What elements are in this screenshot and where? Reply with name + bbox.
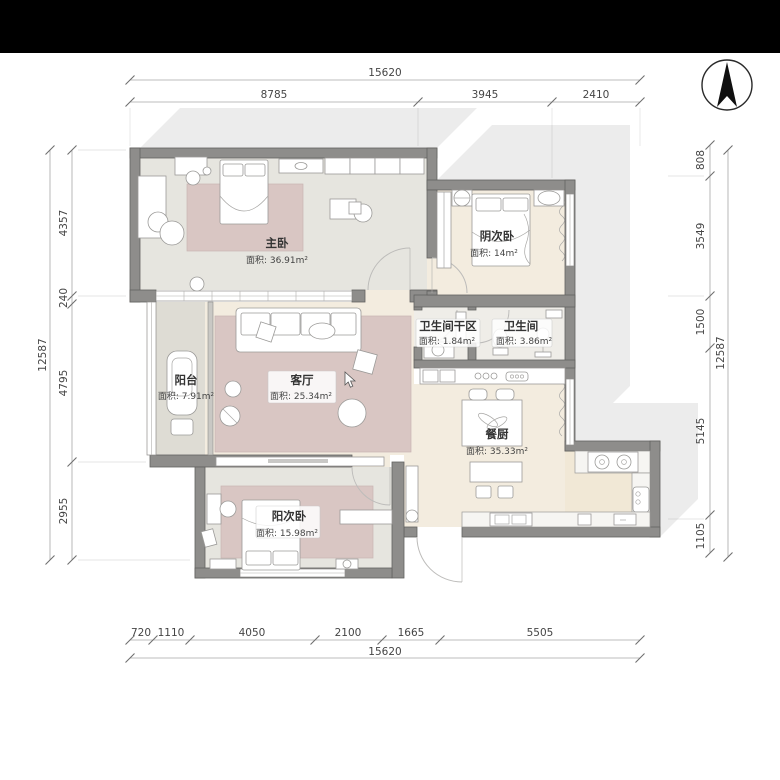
floor-plan-page: 15620 8785 3945 2410 720 1110 (0, 0, 780, 780)
label-dining-kitchen: 餐厨 (485, 427, 509, 441)
dim-bottom-seg-3: 2100 (335, 627, 362, 639)
dining-chair (469, 389, 487, 400)
dim-bottom-seg-0: 720 (131, 627, 151, 639)
entrance-door-arc (417, 537, 462, 582)
dim-left-seg-0: 4357 (58, 210, 70, 237)
label-south-bedroom-area: 面积: 15.98m² (256, 527, 318, 539)
dim-bottom-seg-2: 4050 (239, 627, 266, 639)
label-south-bedroom: 阳次卧 (272, 509, 307, 523)
sb-chair (220, 501, 236, 517)
plant (225, 381, 241, 397)
dim-top-seg-2: 2410 (583, 89, 610, 101)
floor-plan-drawing: 15620 8785 3945 2410 720 1110 (0, 0, 780, 780)
coffee-table (338, 399, 366, 427)
dim-right-seg-0: 808 (695, 150, 707, 170)
label-north-bedroom-area: 面积: 14m² (470, 247, 518, 259)
label-living-area: 面积: 25.34m² (270, 390, 332, 402)
dim-left-seg-3: 2955 (58, 498, 70, 525)
compass-north-icon (702, 60, 752, 110)
sb-dresser (340, 510, 392, 524)
label-dining-kitchen-area: 面积: 35.33m² (466, 445, 528, 457)
label-bath-dry-area: 面积: 1.84m² (419, 335, 476, 347)
dim-bottom-seg-4: 1665 (398, 627, 425, 639)
sb-desk (207, 494, 221, 524)
label-master: 主卧 (266, 236, 289, 250)
dining-bench (470, 462, 522, 482)
label-balcony: 阳台 (175, 373, 198, 387)
dining-chair (496, 389, 514, 400)
label-balcony-area: 面积: 7.91m² (158, 390, 215, 402)
dim-top-total: 15620 (368, 67, 401, 79)
dim-top-seg-0: 8785 (261, 89, 288, 101)
dim-bottom-seg-1: 1110 (158, 627, 185, 639)
fridge (633, 487, 649, 512)
label-bathroom: 卫生间 (504, 319, 539, 333)
dim-right-seg-1: 3549 (695, 223, 707, 250)
master-desk-chair (186, 171, 200, 185)
dim-bottom-seg-5: 5505 (527, 627, 554, 639)
dim-top-seg-1: 3945 (472, 89, 499, 101)
label-bathroom-area: 面积: 3.86m² (496, 335, 553, 347)
dim-right-seg-2: 1500 (695, 309, 707, 336)
label-bath-dry: 卫生间干区 (419, 319, 477, 333)
dim-left-seg-1: 240 (58, 288, 70, 308)
dim-bottom-total: 15620 (368, 646, 401, 658)
dim-right-total: 12587 (715, 336, 727, 369)
dim-left-seg-2: 4795 (58, 370, 70, 397)
label-living: 客厅 (290, 373, 314, 387)
dim-right-seg-4: 1105 (695, 523, 707, 550)
label-master-area: 面积: 36.91m² (246, 254, 308, 266)
label-north-bedroom: 阴次卧 (480, 229, 515, 243)
dim-left-total: 12587 (37, 338, 49, 371)
